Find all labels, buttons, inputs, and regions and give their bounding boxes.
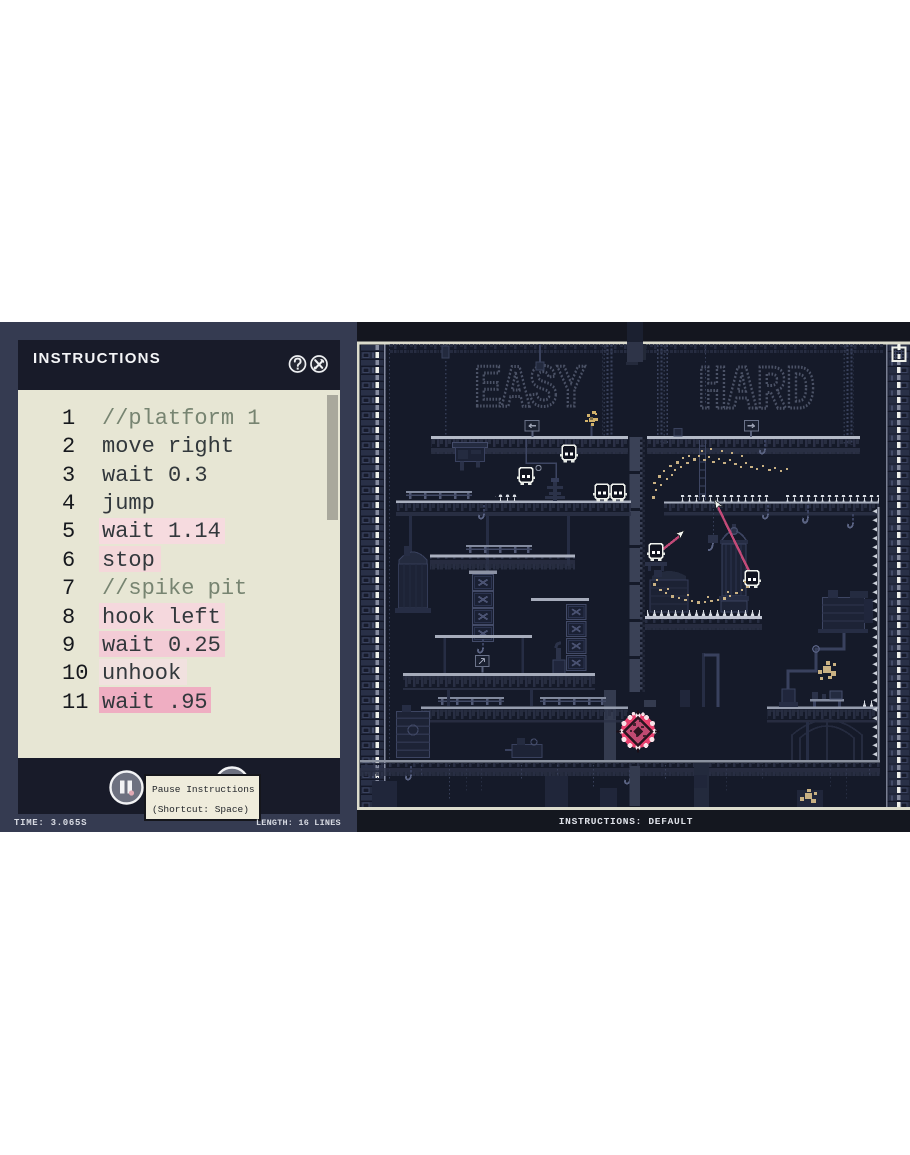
svg-text:INSTRUCTIONS: DEFAULT: INSTRUCTIONS: DEFAULT [559,816,693,827]
svg-text:EASY: EASY [474,357,585,425]
svg-text:HARD: HARD [698,356,815,427]
